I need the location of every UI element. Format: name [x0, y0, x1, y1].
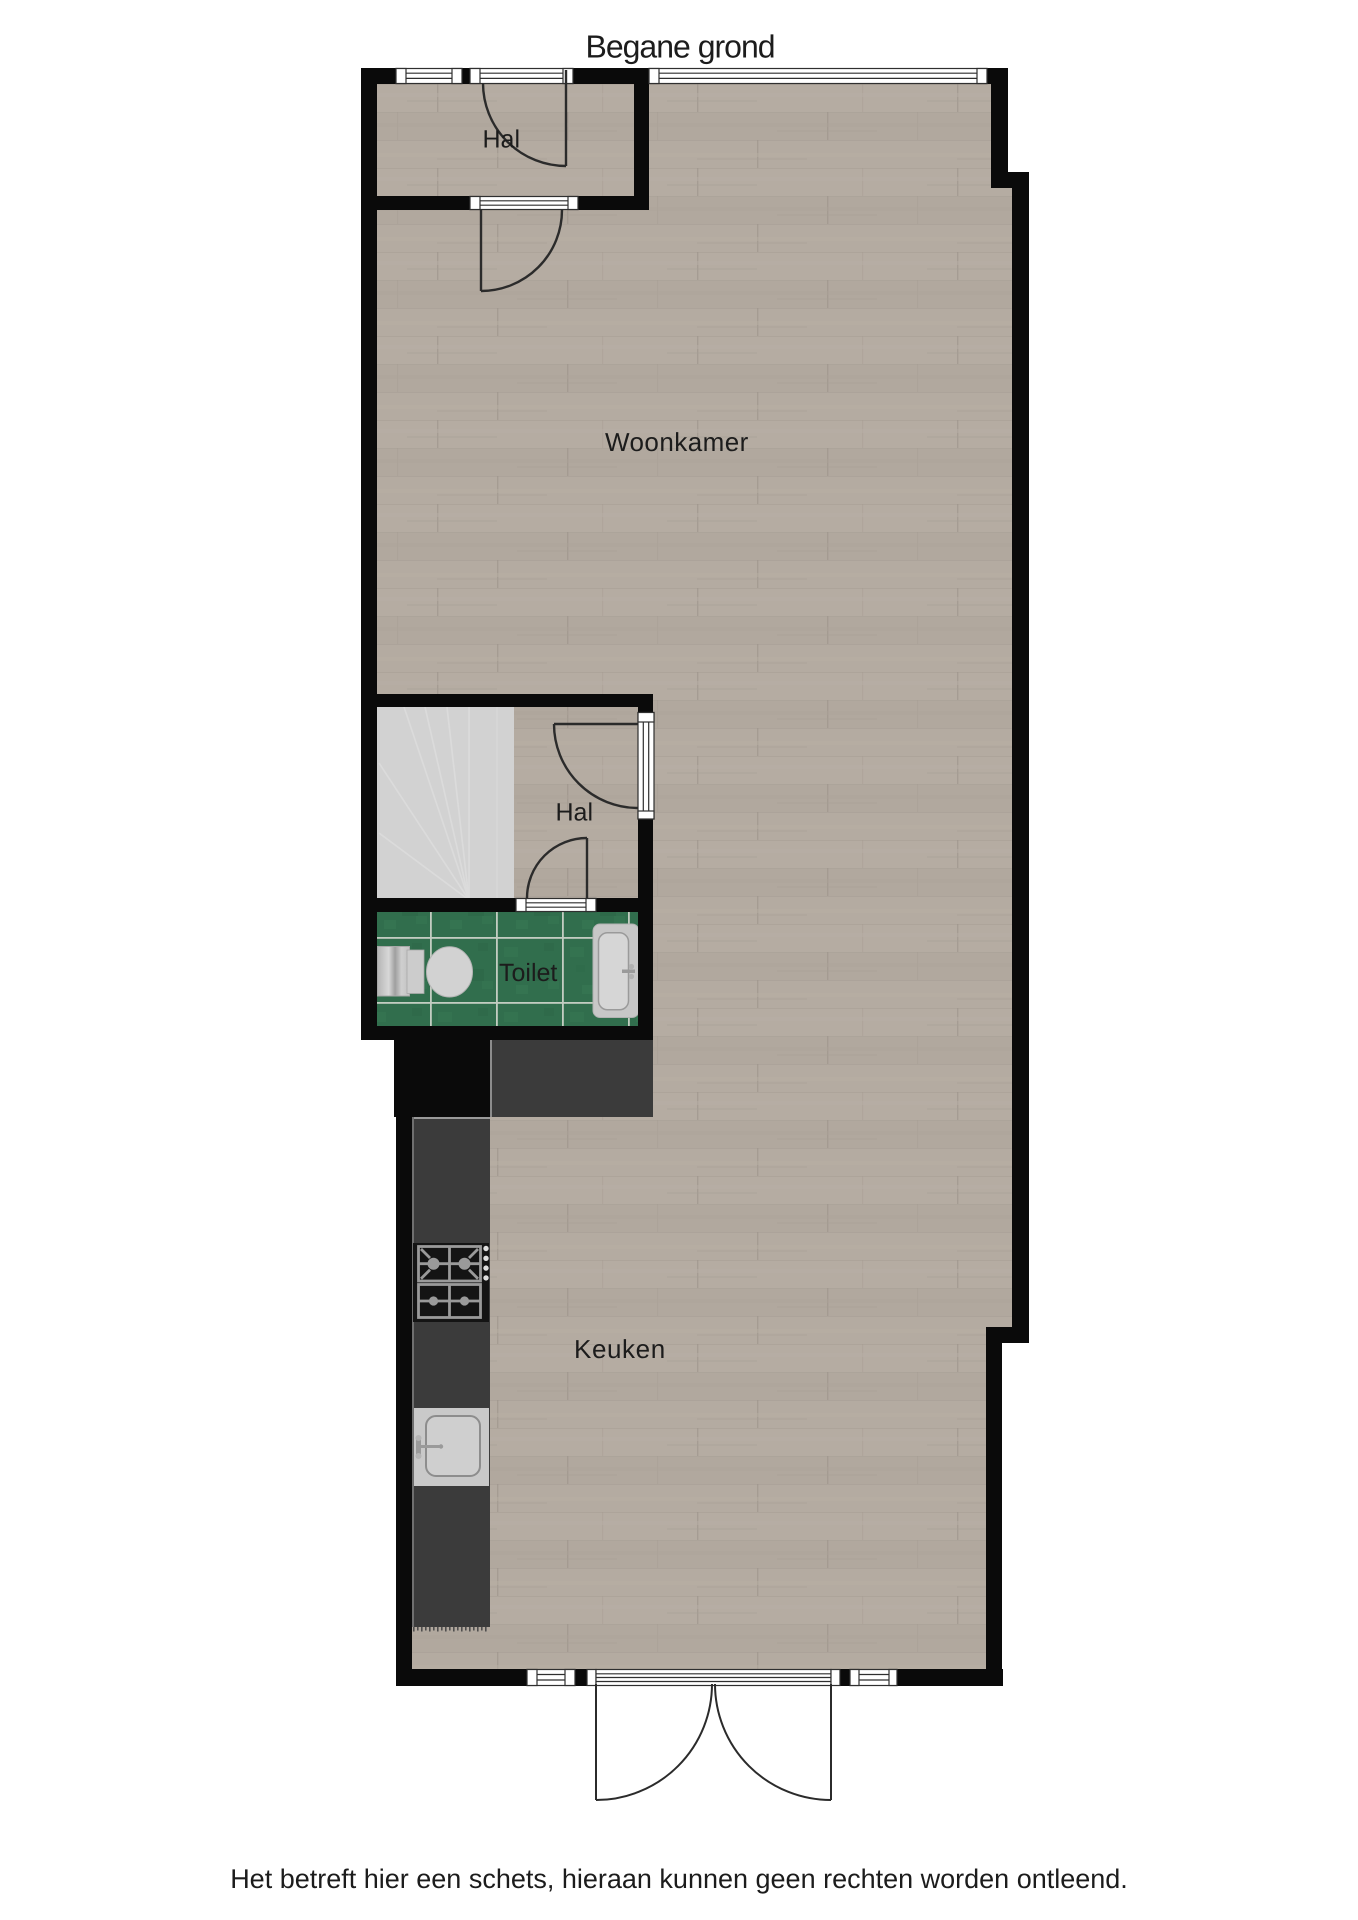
svg-text:Het betreft hier een schets, h: Het betreft hier een schets, hieraan kun… [230, 1864, 1128, 1894]
svg-text:Toilet: Toilet [499, 959, 557, 987]
svg-text:Keuken: Keuken [574, 1334, 666, 1364]
svg-text:Begane grond: Begane grond [585, 29, 774, 65]
svg-text:Woonkamer: Woonkamer [605, 427, 749, 457]
svg-text:Hal: Hal [556, 799, 594, 827]
svg-text:Hal: Hal [483, 126, 521, 154]
